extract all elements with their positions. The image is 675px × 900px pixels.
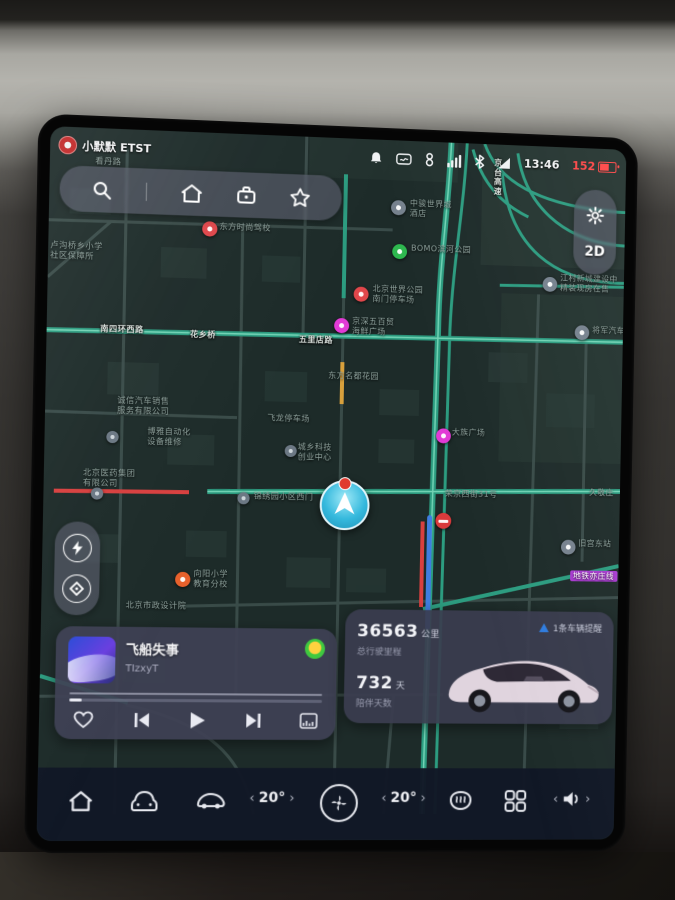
display-content: 看丹路卢沟桥乡小学社区保障所东方时尚驾校中骏世界城酒店BOMO滨河公园北京世界公…: [37, 126, 627, 841]
favorites-button[interactable]: [290, 187, 311, 208]
playlist-icon: [299, 712, 317, 728]
dock-bar: ‹ 20° › ‹ 20° ›: [37, 768, 615, 841]
fan-icon: [330, 794, 348, 812]
volume-control: ‹ ›: [553, 790, 590, 808]
home-icon: [68, 790, 93, 812]
map-label: 城乡科技创业中心: [298, 442, 332, 462]
dock-seat-climate-button[interactable]: [195, 790, 226, 810]
passenger-temp-value[interactable]: 20°: [390, 790, 416, 806]
odometer-value: 36563: [357, 621, 418, 642]
odometer-unit: 公里: [421, 630, 440, 640]
speaker-icon[interactable]: [562, 790, 582, 808]
toolbar-divider: [146, 182, 147, 200]
defrost-button[interactable]: [449, 790, 473, 812]
driver-temp-value[interactable]: 20°: [259, 790, 286, 806]
map-marker-grey[interactable]: [561, 540, 576, 555]
vehicle-image: [439, 640, 608, 716]
track-title: 飞船失事: [126, 639, 295, 660]
defrost-icon: [449, 790, 473, 812]
map-controls-left: [53, 521, 100, 615]
map-marker-magenta[interactable]: [436, 428, 451, 443]
map-label: 旧宫东站: [578, 539, 611, 549]
map-label: 诚信汽车销售服务有限公司: [117, 396, 169, 416]
fan-ring: [320, 784, 359, 822]
next-icon: [244, 712, 262, 728]
star-icon: [290, 187, 311, 208]
map-label: 大族广场: [452, 428, 486, 438]
driver-temp-down-button[interactable]: ‹: [249, 792, 254, 805]
map-label: 北京市政设计院: [126, 600, 187, 610]
vehicle-alert[interactable]: 1条车辆提醒: [539, 621, 602, 634]
dock-home-button[interactable]: [68, 790, 93, 812]
music-player-card[interactable]: 飞船失事 TIzxyT: [54, 626, 337, 740]
volume-up-button[interactable]: ›: [585, 793, 590, 806]
card-divider: [69, 692, 322, 696]
map-label: 中骏世界城酒店: [410, 199, 452, 219]
brand-logo-icon: [58, 136, 77, 155]
alert-text: 1条车辆提醒: [553, 621, 602, 634]
play-icon: [188, 711, 206, 729]
apps-grid-icon: [504, 790, 526, 812]
qq-music-icon[interactable]: [305, 639, 325, 659]
fan-button[interactable]: [320, 790, 358, 822]
track-artist: TIzxyT: [125, 663, 294, 675]
search-button[interactable]: [91, 179, 112, 200]
map-marker-greydot[interactable]: [91, 487, 104, 499]
map-label: 地铁亦庄线: [570, 570, 617, 581]
map-label: 花乡桥: [190, 330, 216, 340]
map-marker-orange[interactable]: [175, 572, 191, 587]
gear-icon: [585, 205, 605, 225]
home-destination-button[interactable]: [180, 182, 203, 203]
signal-bars-icon: [448, 154, 463, 167]
diamond-icon: [69, 581, 84, 595]
network-icon: [497, 156, 511, 169]
map-marker-grey[interactable]: [543, 277, 558, 292]
map-settings-button[interactable]: [585, 205, 605, 225]
bluetooth-icon: [475, 155, 485, 169]
map-label: 南四环西路: [100, 324, 144, 335]
dock-vehicle-button[interactable]: [131, 790, 158, 812]
map-label: 荣京西街31号: [445, 489, 498, 499]
hotspot-icon: [425, 153, 435, 167]
map-label: 北京世界公园南门停车场: [372, 284, 423, 305]
passenger-temp-up-button[interactable]: ›: [420, 792, 425, 805]
map-marker-red[interactable]: [354, 287, 369, 302]
map-marker-grey[interactable]: [391, 200, 406, 215]
car-front-icon: [131, 790, 158, 812]
driver-temp-control: ‹ 20° ›: [249, 790, 294, 806]
car-side-icon: [195, 790, 226, 810]
apps-button[interactable]: [504, 790, 526, 812]
next-track-button[interactable]: [244, 712, 262, 728]
passenger-temp-down-button[interactable]: ‹: [381, 792, 386, 805]
map-label: BOMO滨河公园: [411, 244, 471, 256]
map-label: 江村新城建设中精装现房在售: [560, 273, 618, 294]
dashboard-trim: [0, 852, 675, 900]
view-mode-2d-button[interactable]: 2D: [584, 243, 605, 259]
vehicle-status-card[interactable]: 1条车辆提醒 36563公里 总行驶里程 732天 陪伴天数: [343, 609, 613, 724]
driver-temp-up-button[interactable]: ›: [289, 792, 294, 805]
media-widget-icon: [396, 152, 412, 166]
play-button[interactable]: [188, 711, 206, 729]
map-label: 五里店路: [299, 335, 333, 345]
passenger-temp-control: ‹ 20° ›: [381, 790, 426, 806]
previous-track-button[interactable]: [132, 711, 151, 727]
volume-down-button[interactable]: ‹: [553, 793, 558, 806]
map-marker-noentry[interactable]: [435, 513, 451, 529]
vehicle-name: 小默默 ETST: [82, 138, 151, 157]
companion-value: 732: [356, 673, 393, 693]
navigation-arrow-icon: [330, 490, 358, 518]
map-label: 久敬庄: [589, 488, 614, 498]
map-label: 北京医药集团有限公司: [83, 468, 136, 488]
map-controls-right: 2D: [573, 189, 617, 275]
search-icon: [91, 179, 112, 200]
map-marker-grey[interactable]: [575, 325, 590, 340]
status-icons: 13:46 152: [369, 150, 616, 174]
map-label: 东方名都花园: [328, 371, 379, 382]
companion-unit: 天: [396, 681, 406, 691]
vehicle-badge: 小默默 ETST: [58, 136, 151, 158]
previous-icon: [132, 711, 151, 727]
playlist-button[interactable]: [299, 712, 317, 728]
map-marker-greydot[interactable]: [285, 445, 297, 457]
map-label: 飞龙停车场: [267, 413, 310, 424]
map-marker-red[interactable]: [202, 221, 217, 237]
charging-stations-button[interactable]: [63, 534, 92, 563]
map-marker-greydot[interactable]: [106, 431, 119, 443]
briefcase-icon: [236, 185, 257, 205]
parking-button[interactable]: [62, 574, 91, 603]
map-label: 向阳小学教育分校: [193, 569, 228, 589]
center-display: 看丹路卢沟桥乡小学社区保障所东方时尚驾校中骏世界城酒店BOMO滨河公园北京世界公…: [24, 113, 638, 853]
alert-dot: [338, 477, 351, 490]
map-label: 锦绣园小区西门: [254, 491, 314, 502]
lightning-icon: [71, 541, 84, 555]
battery-range: 152: [572, 159, 617, 175]
map-marker-green[interactable]: [392, 244, 407, 259]
progress-bar[interactable]: [69, 698, 322, 702]
favorite-button[interactable]: [73, 710, 94, 728]
map-label: 卢沟桥乡小学社区保障所: [50, 240, 103, 261]
map-label: 东方时尚驾校: [219, 222, 271, 233]
heart-icon: [73, 710, 94, 728]
range-value: 152: [572, 159, 595, 174]
map-marker-greydot[interactable]: [237, 492, 249, 504]
notification-bell-icon: [369, 150, 383, 165]
album-art[interactable]: [68, 636, 116, 683]
clock: 13:46: [524, 157, 560, 172]
map-label: 将军汽车: [592, 326, 625, 336]
map-marker-magenta[interactable]: [334, 318, 349, 333]
work-destination-button[interactable]: [236, 185, 257, 205]
map-label: 博雅自动化设备维修: [147, 427, 191, 447]
battery-icon: [598, 161, 617, 173]
alert-triangle-icon: [539, 623, 549, 632]
map-label: 京深五百贸海鲜广场: [352, 316, 395, 336]
home-icon: [180, 182, 203, 203]
